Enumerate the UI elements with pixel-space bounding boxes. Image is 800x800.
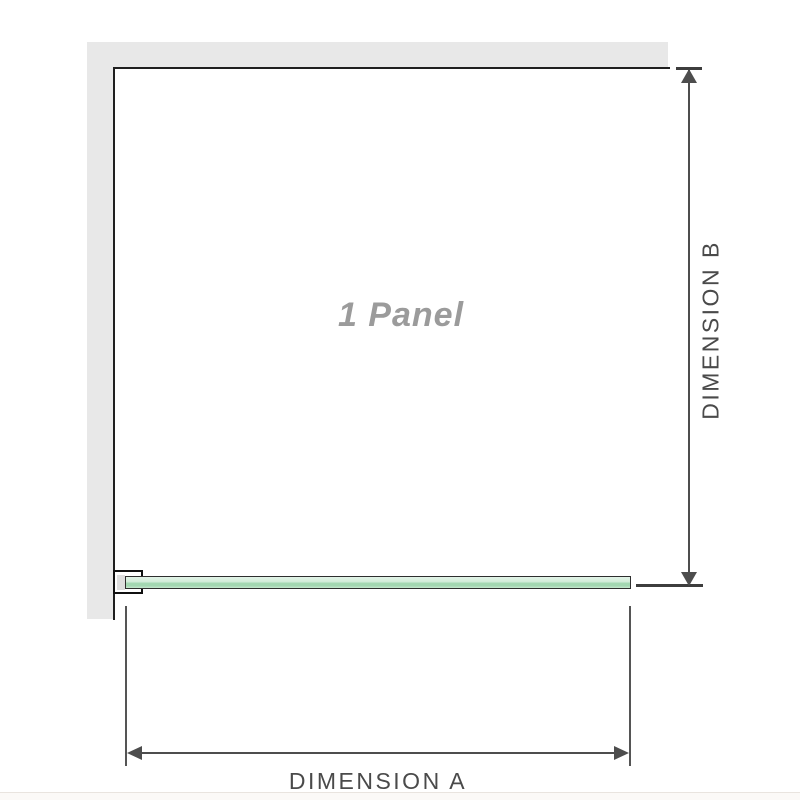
arrow-down-icon <box>681 572 697 586</box>
footer-band <box>0 793 800 800</box>
panel-outline-top <box>113 67 670 69</box>
arrow-right-icon <box>614 746 629 760</box>
arrow-left-icon <box>127 746 142 760</box>
dimension-diagram: 1 Panel DIMENSION B DIMENSION A <box>0 0 800 800</box>
dimension-a-right-extension-line <box>629 606 631 766</box>
dimension-a-left-extension-line <box>125 606 127 766</box>
dimension-b-label: DIMENSION B <box>698 240 725 420</box>
glass-panel-bar <box>125 576 631 589</box>
dimension-b-line <box>688 70 691 584</box>
dimension-a-line <box>129 752 627 755</box>
arrow-up-icon <box>681 69 697 83</box>
panel-count-label: 1 Panel <box>251 296 551 335</box>
wall-left-band <box>87 42 113 619</box>
wall-top-band <box>87 42 668 67</box>
panel-outline-left <box>113 67 115 620</box>
